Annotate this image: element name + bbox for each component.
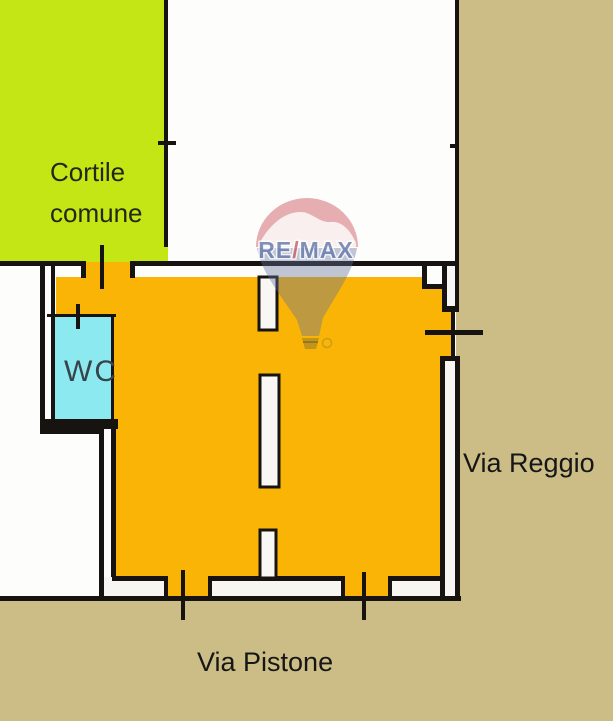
brand-max: MAX [300,237,354,263]
right-wall-fill [443,357,457,600]
courtyard-border-tick [158,141,176,145]
courtyard-door-tick [100,245,104,289]
wc-window-tick [76,304,80,329]
door1-jamb-left [164,576,168,597]
door1-tick [181,570,185,620]
left-wall-lower-inner [111,429,116,577]
wc-label: WC [64,355,118,388]
bottom-wall-top-1 [112,576,168,581]
right-wall-left-edge [440,356,445,600]
bottom-wall-top-3 [388,576,445,581]
property-line [455,0,459,312]
door2-jamb-right [388,576,392,597]
street-label-via-reggio: Via Reggio [463,448,595,478]
floor-plan-svg: RE/MAX Cortile comune WC Via Reggio Via … [0,0,613,721]
brand-re: RE [258,237,292,263]
brand-slash: / [292,237,299,263]
topright-wall-left-edge [442,266,447,308]
left-wall-outer [40,261,45,434]
right-wall-right-edge [455,356,460,600]
courtyard-label-line2: comune [50,198,143,228]
remax-brand-text: RE/MAX [258,237,353,263]
courtyard-door-jamb-left [81,261,86,278]
right-window-line [451,312,455,360]
bottom-boundary-line [0,596,461,601]
partition-segment-bottom [260,530,276,578]
right-wall-top-cap [440,356,460,361]
left-wall-inner [51,262,55,420]
wc-bottom-wall [44,419,118,429]
door2-jamb-left [341,576,345,597]
wc-top-line [47,314,116,317]
door2-tick [362,572,366,620]
courtyard-label-line1: Cortile [50,157,125,187]
property-line-tick [450,144,458,148]
topright-wall-cap [442,306,459,312]
partition-segment-middle [260,375,279,487]
left-step-outer-h [40,429,104,434]
right-window-tick [425,330,483,335]
door1-jamb-right [208,576,212,597]
floor-plan-page: RE/MAX Cortile comune WC Via Reggio Via … [0,0,613,721]
courtyard-door-jamb-right [130,261,135,278]
left-step-outer-v [99,429,104,598]
street-label-via-pistone: Via Pistone [197,647,333,677]
interior-partition [259,277,279,578]
basket-line [303,341,318,343]
courtyard-right-border [164,0,168,247]
